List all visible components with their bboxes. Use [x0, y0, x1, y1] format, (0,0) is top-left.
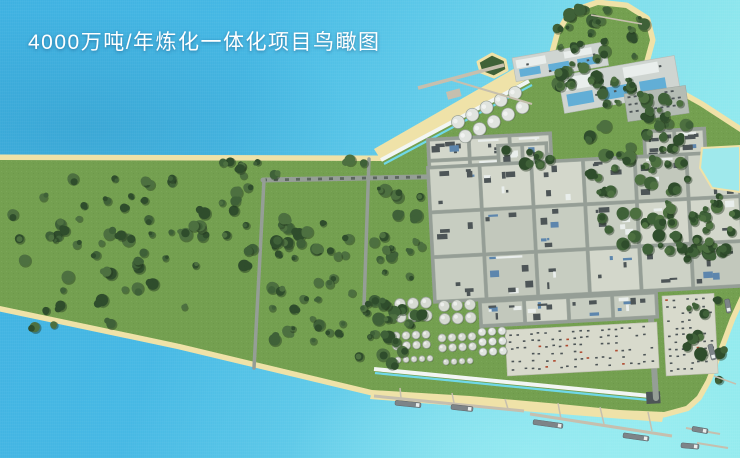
main-process-grid — [426, 150, 740, 304]
scene-svg — [0, 0, 740, 458]
jetty-berth-platform — [446, 88, 462, 99]
ship — [692, 426, 709, 434]
project-title: 4000万吨/年炼化一体化项目鸟瞰图 — [28, 26, 381, 56]
ship — [623, 433, 649, 442]
corner-pier-b — [697, 443, 728, 448]
sp-west-trestle-1 — [400, 388, 401, 398]
ship — [681, 443, 699, 450]
laydown-yard — [505, 322, 659, 376]
ship — [533, 419, 563, 428]
aerial-render: 4000万吨/年炼化一体化项目鸟瞰图 — [0, 0, 740, 458]
tank-farm-e — [478, 327, 508, 357]
